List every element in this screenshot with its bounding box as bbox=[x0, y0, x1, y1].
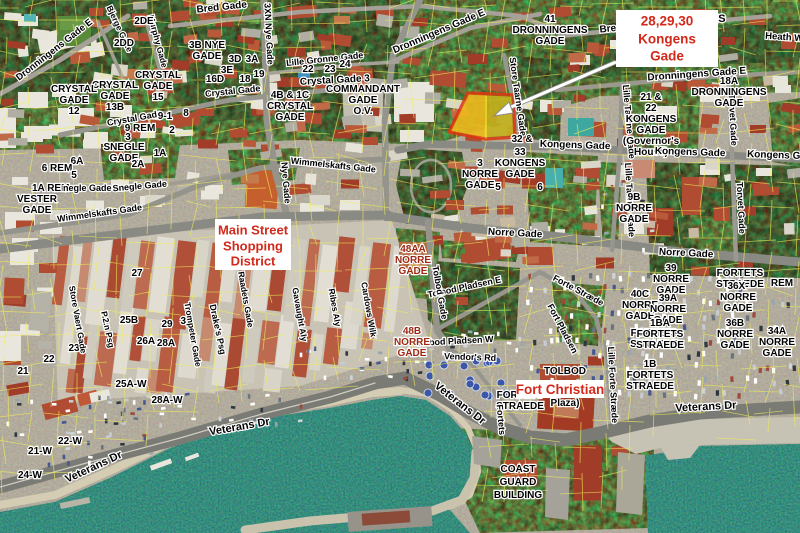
svg-text:FORTETS: FORTETS bbox=[637, 329, 684, 340]
svg-text:District: District bbox=[231, 254, 276, 269]
svg-text:27: 27 bbox=[131, 268, 143, 279]
svg-text:STRAEDE: STRAEDE bbox=[636, 340, 684, 351]
svg-text:GADE: GADE bbox=[101, 91, 130, 102]
svg-text:GADE: GADE bbox=[398, 348, 427, 359]
svg-text:22: 22 bbox=[645, 103, 657, 114]
svg-text:NORRE: NORRE bbox=[653, 274, 689, 285]
svg-text:2DD: 2DD bbox=[114, 38, 134, 49]
svg-text:25A-W: 25A-W bbox=[115, 379, 147, 390]
svg-text:9-1: 9-1 bbox=[158, 111, 173, 122]
svg-text:22-W: 22-W bbox=[58, 436, 82, 447]
svg-text:GADE: GADE bbox=[536, 36, 565, 47]
svg-text:NORRE: NORRE bbox=[717, 329, 753, 340]
svg-text:CRYSTAL: CRYSTAL bbox=[267, 101, 313, 112]
svg-text:negle Gade: negle Gade bbox=[63, 183, 112, 193]
svg-text:3: 3 bbox=[477, 158, 483, 169]
svg-text:GADE: GADE bbox=[466, 180, 495, 191]
svg-text:24: 24 bbox=[339, 59, 351, 70]
svg-text:COMMANDANT: COMMANDANT bbox=[326, 84, 400, 95]
svg-text:5: 5 bbox=[71, 170, 77, 181]
svg-text:CRYSTAL: CRYSTAL bbox=[51, 84, 97, 95]
svg-text:8: 8 bbox=[183, 108, 189, 119]
svg-text:GADE: GADE bbox=[60, 95, 89, 106]
svg-text:NORRE: NORRE bbox=[394, 337, 430, 348]
svg-text:3B NYE: 3B NYE bbox=[189, 40, 225, 51]
svg-text:36X-: 36X- bbox=[727, 281, 748, 292]
svg-text:28A-W: 28A-W bbox=[151, 395, 183, 406]
svg-text:28A: 28A bbox=[157, 338, 175, 349]
svg-text:GADE: GADE bbox=[193, 51, 222, 62]
svg-text:GADE: GADE bbox=[620, 214, 649, 225]
svg-text:24-W: 24-W bbox=[18, 470, 42, 481]
svg-text:6A: 6A bbox=[71, 156, 84, 167]
svg-text:O.V.: O.V. bbox=[353, 106, 372, 117]
svg-text:2: 2 bbox=[169, 125, 175, 136]
svg-text:CRYSTAL: CRYSTAL bbox=[92, 80, 138, 91]
svg-text:GADE: GADE bbox=[637, 125, 666, 136]
svg-text:NORRE: NORRE bbox=[616, 203, 652, 214]
svg-text:18A: 18A bbox=[720, 76, 738, 87]
svg-text:DRONNINGENS: DRONNINGENS bbox=[512, 25, 587, 36]
svg-text:3A: 3A bbox=[246, 54, 259, 65]
svg-text:41: 41 bbox=[544, 14, 556, 25]
svg-text:STRAEDE: STRAEDE bbox=[626, 381, 674, 392]
svg-text:KONGENS: KONGENS bbox=[495, 158, 546, 169]
svg-text:1BA: 1BA bbox=[650, 318, 670, 329]
svg-text:26A: 26A bbox=[137, 336, 155, 347]
svg-text:GADE: GADE bbox=[144, 81, 173, 92]
svg-text:5: 5 bbox=[495, 182, 501, 193]
svg-text:SNEGLE: SNEGLE bbox=[103, 142, 144, 153]
svg-text:21-W: 21-W bbox=[28, 446, 52, 457]
svg-text:GUARD: GUARD bbox=[500, 477, 537, 488]
svg-text:23: 23 bbox=[324, 64, 336, 75]
svg-text:28,29,30: 28,29,30 bbox=[641, 14, 694, 29]
svg-text:4B & 1C: 4B & 1C bbox=[271, 90, 309, 101]
svg-text:40C: 40C bbox=[631, 289, 649, 300]
svg-text:19: 19 bbox=[253, 69, 265, 80]
svg-text:6: 6 bbox=[537, 182, 543, 193]
svg-text:NORRE: NORRE bbox=[720, 292, 756, 303]
svg-text:2A: 2A bbox=[132, 159, 145, 170]
svg-text:39: 39 bbox=[665, 263, 677, 274]
svg-text:NORRE: NORRE bbox=[395, 255, 431, 266]
svg-text:Vendor's Rd: Vendor's Rd bbox=[444, 351, 496, 363]
svg-text:FORTETS: FORTETS bbox=[627, 370, 674, 381]
svg-text:COAST: COAST bbox=[501, 464, 536, 475]
svg-text:NORRE: NORRE bbox=[462, 169, 498, 180]
svg-text:9B: 9B bbox=[628, 192, 641, 203]
svg-text:FORTETS: FORTETS bbox=[717, 268, 764, 279]
svg-text:TOLBOD: TOLBOD bbox=[544, 366, 586, 377]
svg-text:16D: 16D bbox=[206, 74, 224, 85]
svg-text:GADE: GADE bbox=[399, 266, 428, 277]
svg-text:CRYSTAL: CRYSTAL bbox=[135, 70, 181, 81]
svg-text:39A: 39A bbox=[659, 293, 677, 304]
svg-text:REM: REM bbox=[771, 278, 793, 289]
svg-text:NORRE: NORRE bbox=[759, 337, 795, 348]
svg-text:32 &: 32 & bbox=[511, 134, 532, 145]
svg-text:BUILDING: BUILDING bbox=[494, 490, 543, 501]
svg-text:22: 22 bbox=[43, 354, 55, 365]
svg-text:22: 22 bbox=[302, 64, 314, 75]
svg-text:GADE: GADE bbox=[506, 169, 535, 180]
svg-text:34A: 34A bbox=[768, 326, 786, 337]
svg-text:15: 15 bbox=[152, 92, 164, 103]
svg-text:1A: 1A bbox=[154, 148, 167, 159]
svg-text:13B: 13B bbox=[106, 102, 124, 113]
svg-text:DRONNINGENS: DRONNINGENS bbox=[691, 87, 766, 98]
svg-text:Gade: Gade bbox=[650, 49, 684, 64]
svg-text:2DE: 2DE bbox=[134, 16, 154, 27]
svg-text:GADE: GADE bbox=[763, 348, 792, 359]
svg-text:36B: 36B bbox=[726, 318, 744, 329]
svg-text:21 &: 21 & bbox=[640, 92, 661, 103]
svg-text:Kongens: Kongens bbox=[638, 32, 696, 47]
svg-text:GADE: GADE bbox=[349, 95, 378, 106]
svg-text:VESTER: VESTER bbox=[17, 194, 58, 205]
svg-text:48AA: 48AA bbox=[400, 244, 426, 255]
svg-text:NORRE: NORRE bbox=[650, 304, 686, 315]
svg-text:Fort Christian: Fort Christian bbox=[516, 382, 605, 397]
svg-text:3D: 3D bbox=[229, 54, 242, 65]
svg-text:48B: 48B bbox=[403, 326, 421, 337]
svg-text:6 REM: 6 REM bbox=[42, 163, 73, 174]
svg-text:GADE: GADE bbox=[23, 205, 52, 216]
svg-text:25B: 25B bbox=[120, 315, 138, 326]
svg-text:GADE: GADE bbox=[715, 98, 744, 109]
svg-text:GADE: GADE bbox=[721, 340, 750, 351]
svg-text:Shopping: Shopping bbox=[223, 239, 283, 254]
svg-text:GADE: GADE bbox=[724, 303, 753, 314]
svg-text:29: 29 bbox=[161, 319, 173, 330]
svg-text:1B: 1B bbox=[644, 359, 657, 370]
svg-text:Kongens G.: Kongens G. bbox=[747, 149, 800, 162]
svg-text:GADE: GADE bbox=[276, 112, 305, 123]
svg-text:33: 33 bbox=[514, 147, 526, 158]
svg-text:12: 12 bbox=[68, 106, 80, 117]
svg-text:Plaza): Plaza) bbox=[551, 398, 580, 409]
svg-text:21: 21 bbox=[17, 366, 29, 377]
svg-text:Main Street: Main Street bbox=[218, 223, 289, 238]
svg-text:KONGENS: KONGENS bbox=[626, 114, 677, 125]
